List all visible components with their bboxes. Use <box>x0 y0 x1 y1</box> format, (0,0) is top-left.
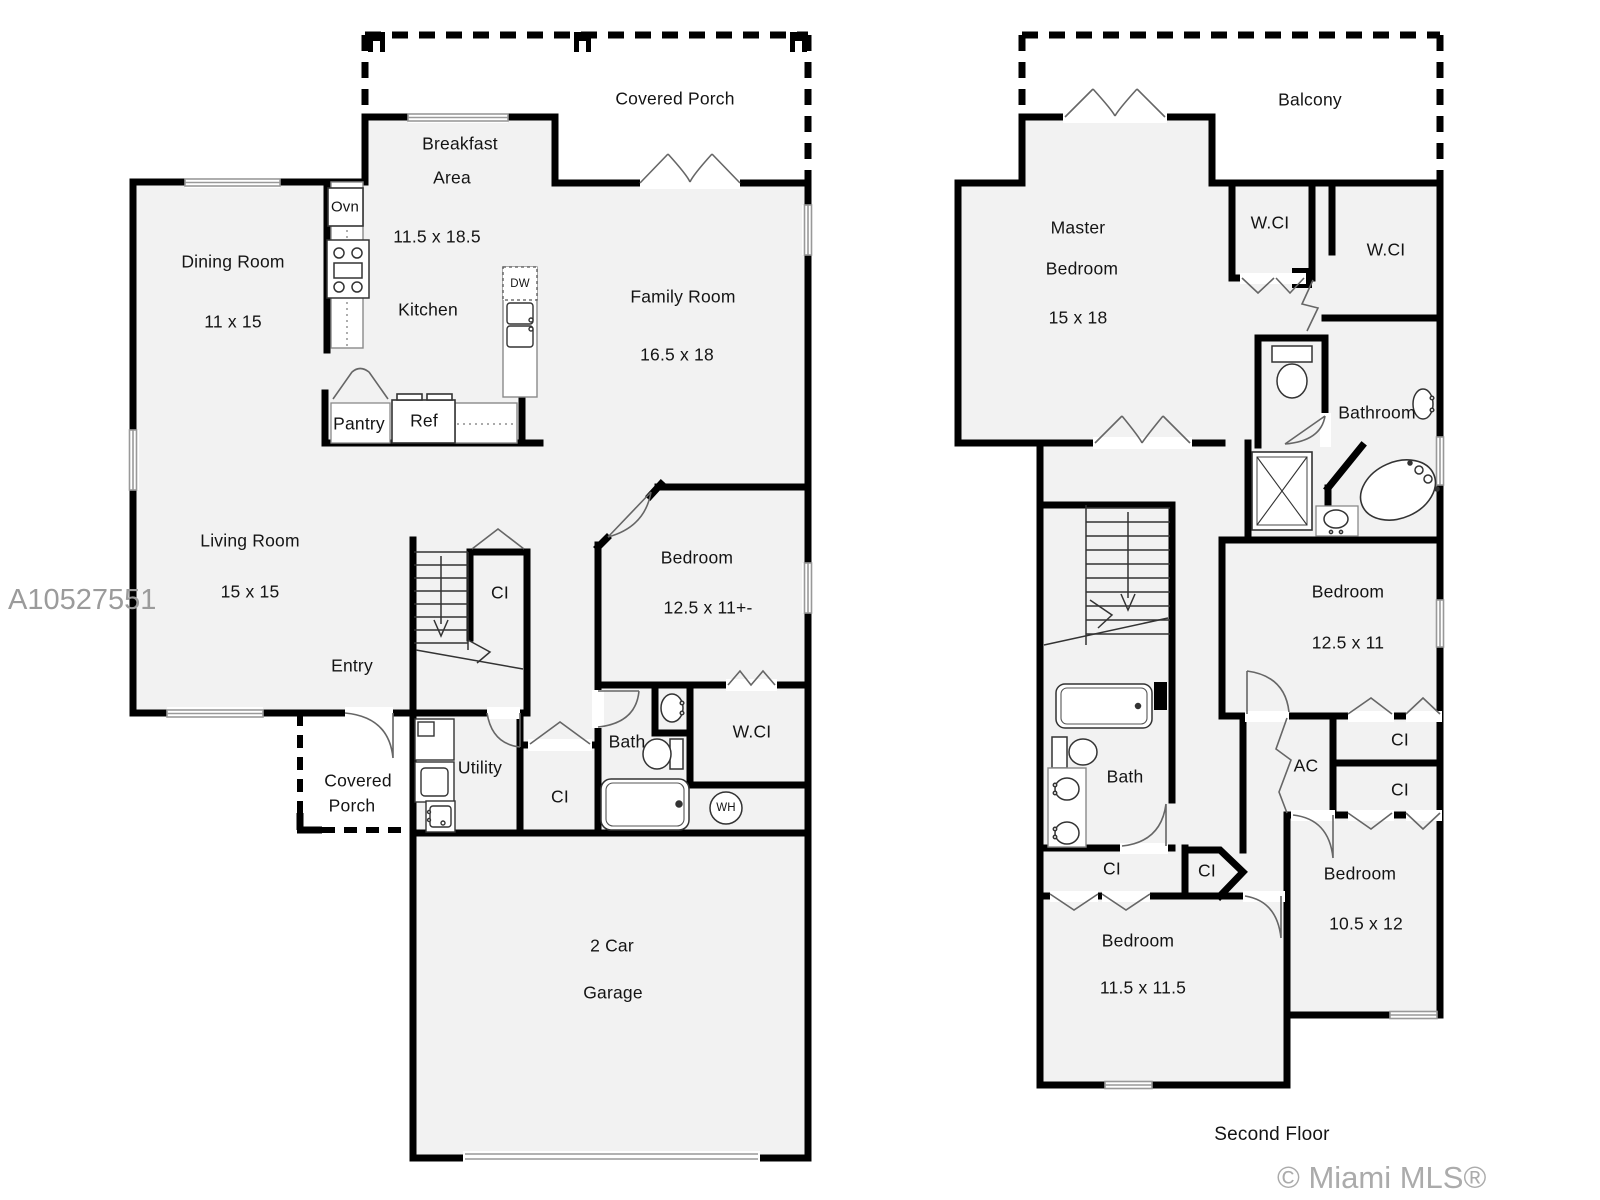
room-label-front-porch-2: Porch <box>329 796 376 817</box>
room-label-bedroom-c: Bedroom <box>1324 864 1396 885</box>
room-dims-dining: 11 x 15 <box>204 312 262 333</box>
double-vanity-icon <box>1048 768 1086 847</box>
room-dims-bedroom1f: 12.5 x 11+- <box>664 598 753 619</box>
room-label-breakfast-1: Breakfast <box>422 134 498 155</box>
sink-icon <box>661 694 684 722</box>
room-dims-bedroom-b: 11.5 x 11.5 <box>1100 978 1186 999</box>
room-dims-bedroom-c: 10.5 x 12 <box>1329 914 1403 935</box>
closet-label-ci-bottom: CI <box>1391 780 1409 801</box>
front-porch-corner <box>297 813 322 830</box>
room-dims-breakfast: 11.5 x 18.5 <box>393 227 481 248</box>
small-sink-icon <box>1316 506 1358 536</box>
room-label-entry: Entry <box>331 656 373 677</box>
room-label-master-1: Master <box>1051 218 1106 239</box>
washer-icon <box>415 719 454 760</box>
label-water-heater: WH <box>716 802 736 814</box>
shower-icon <box>1252 452 1312 530</box>
closet-label-hall: CI <box>551 787 569 808</box>
closet-label-ci-top: CI <box>1391 730 1409 751</box>
sink-icon <box>1413 389 1434 419</box>
listing-id-watermark: A10527551 <box>8 584 156 617</box>
floorplan-page: Covered Porch Breakfast Area 11.5 x 18.5… <box>0 0 1600 1200</box>
floor-caption: Second Floor <box>1214 1124 1329 1146</box>
room-label-bath1f: Bath <box>609 732 646 753</box>
closet-label-stairs: CI <box>491 583 509 604</box>
room-label-master-2: Bedroom <box>1046 259 1118 280</box>
label-fridge: Ref <box>410 411 438 432</box>
room-dims-master: 15 x 18 <box>1049 308 1108 329</box>
room-label-bedroom-a: Bedroom <box>1312 582 1384 603</box>
closet-label-ci-pent: CI <box>1198 861 1216 882</box>
tub-stub-wall <box>1154 682 1167 710</box>
room-label-bedroom1f: Bedroom <box>661 548 733 569</box>
room-label-utility: Utility <box>458 758 502 779</box>
dryer-icon <box>415 762 454 802</box>
room-label-balcony: Balcony <box>1278 90 1342 111</box>
room-label-family: Family Room <box>630 287 735 308</box>
room-label-dining: Dining Room <box>181 252 284 273</box>
mls-copyright-watermark: © Miami MLS® 08/2018 <box>1277 1160 1600 1200</box>
room-label-garage-1: 2 Car <box>590 936 634 957</box>
stove-icon <box>327 240 369 298</box>
room-label-breakfast-2: Area <box>433 168 471 189</box>
closet-label-ac: AC <box>1294 756 1319 777</box>
room-label-front-porch-1: Covered <box>324 771 392 792</box>
bathtub-icon <box>601 779 689 830</box>
toilet-icon <box>643 739 683 769</box>
room-label-living: Living Room <box>200 531 299 552</box>
label-pantry: Pantry <box>333 414 385 435</box>
room-dims-living: 15 x 15 <box>221 582 280 603</box>
room-label-bathroom: Bathroom <box>1338 403 1415 424</box>
room-label-kitchen: Kitchen <box>398 300 458 321</box>
room-dims-bedroom-a: 12.5 x 11 <box>1312 633 1385 654</box>
room-label-bedroom-b: Bedroom <box>1102 931 1174 952</box>
utility-sink-icon <box>426 801 455 832</box>
room-dims-family: 16.5 x 18 <box>640 345 714 366</box>
label-oven: Ovn <box>331 199 359 216</box>
closet-label-wci-b: W.CI <box>1367 240 1406 261</box>
room-label-bath2f: Bath <box>1107 767 1144 788</box>
closet-label-wci-a: W.CI <box>1251 213 1290 234</box>
label-dishwasher: DW <box>510 278 530 290</box>
closet-label-ci-hall: CI <box>1103 859 1121 880</box>
room-label-wci1f: W.CI <box>733 722 772 743</box>
room-label-rear-porch: Covered Porch <box>615 89 734 110</box>
bathtub-icon <box>1056 684 1152 728</box>
room-label-garage-2: Garage <box>583 983 643 1004</box>
